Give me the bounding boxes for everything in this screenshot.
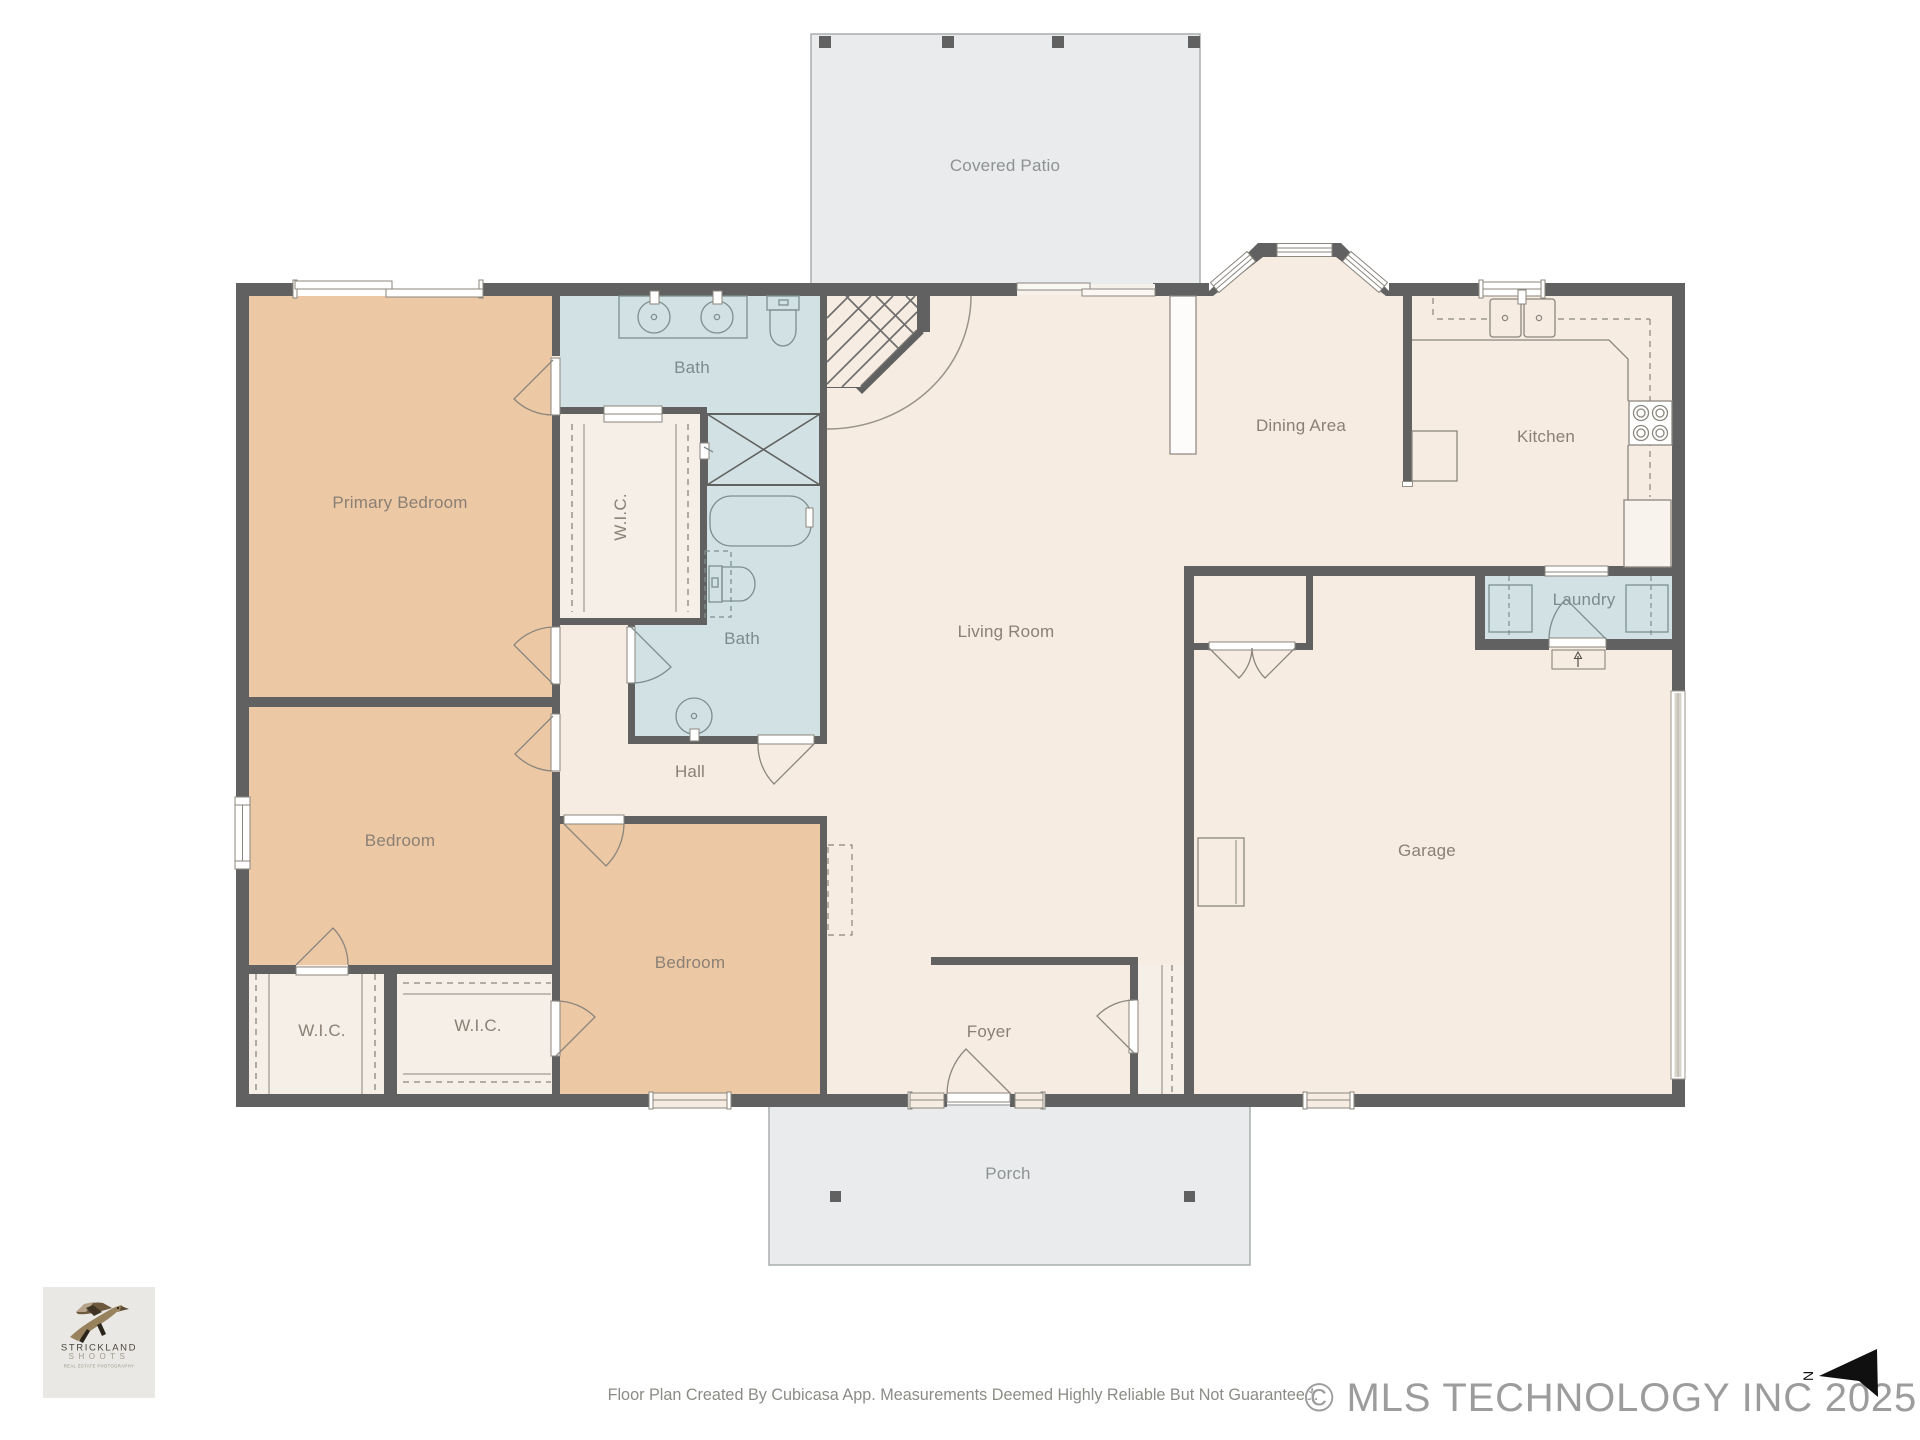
svg-text:W.I.C.: W.I.C. [611, 493, 630, 540]
svg-text:W.I.C.: W.I.C. [298, 1021, 345, 1040]
svg-text:Foyer: Foyer [967, 1022, 1012, 1041]
svg-text:© MLS TECHNOLOGY INC 2025: © MLS TECHNOLOGY INC 2025 [1304, 1376, 1917, 1420]
svg-text:SHOOTS: SHOOTS [69, 1352, 130, 1361]
svg-text:Covered Patio: Covered Patio [950, 156, 1060, 175]
svg-text:Primary Bedroom: Primary Bedroom [332, 493, 467, 512]
svg-text:Bath: Bath [724, 629, 760, 648]
svg-text:REAL ESTATE PHOTOGRAPHY: REAL ESTATE PHOTOGRAPHY [64, 1364, 134, 1369]
svg-text:Porch: Porch [985, 1164, 1030, 1183]
svg-text:Bath: Bath [674, 358, 710, 377]
svg-text:Laundry: Laundry [1553, 590, 1616, 609]
svg-text:Living Room: Living Room [958, 622, 1055, 641]
svg-text:Garage: Garage [1398, 841, 1456, 860]
svg-text:Hall: Hall [675, 762, 705, 781]
svg-text:N: N [1800, 1371, 1816, 1381]
svg-text:W.I.C.: W.I.C. [454, 1016, 501, 1035]
svg-text:Bedroom: Bedroom [365, 831, 435, 850]
svg-text:Floor Plan Created By Cubicasa: Floor Plan Created By Cubicasa App. Meas… [608, 1386, 1319, 1404]
svg-text:Dining Area: Dining Area [1256, 416, 1346, 435]
svg-text:Bedroom: Bedroom [655, 953, 725, 972]
svg-text:Kitchen: Kitchen [1517, 427, 1575, 446]
